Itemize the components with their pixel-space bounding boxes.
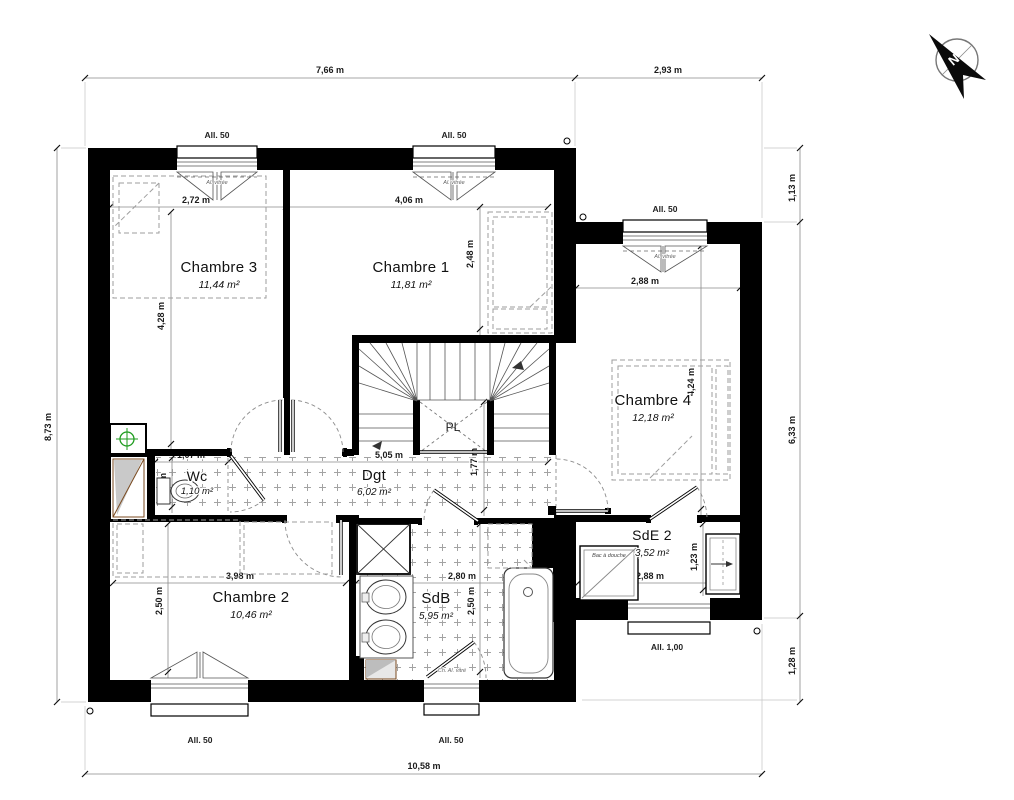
sill-label: All. 50 (204, 130, 229, 140)
sill-label-100: All. 1,00 (651, 642, 683, 652)
sde2-cabinet (706, 534, 740, 594)
room-name-chambre2: Chambre 2 (213, 589, 290, 606)
sdb-window-note: Ch. Al. vitré (438, 668, 466, 674)
double-washbasin (360, 576, 413, 658)
window-chambre4: Al. vitrée (623, 220, 707, 272)
dim-label-sde2-width: 2,88 m (636, 571, 664, 581)
window-note: Al. vitrée (205, 180, 227, 186)
room-area-dgt: 6,02 m² (357, 487, 392, 498)
dim-label-top-right: 2,93 m (654, 65, 682, 75)
room-area-chambre1: 11,81 m² (391, 279, 432, 291)
room-name-chambre3: Chambre 3 (181, 259, 258, 276)
staircase: PL (359, 343, 549, 452)
room-name-dgt: Dgt (362, 467, 387, 484)
window-sde2 (628, 596, 710, 634)
dim-label-ch2-height: 2,50 m (154, 587, 164, 615)
bed-chambre1 (488, 212, 552, 333)
sdb-closet (357, 524, 410, 574)
dim-label-ch1-height: 2,48 m (465, 240, 475, 268)
window-note: Al. vitrée (653, 254, 675, 260)
bathtub (504, 568, 553, 678)
dim-label-right-top: 1,13 m (787, 174, 797, 202)
dim-label-right-mid: 6,33 m (787, 416, 797, 444)
room-name-sde2: SdE 2 (632, 527, 672, 543)
dim-label-sdb-width: 2,80 m (448, 571, 476, 581)
room-area-chambre3: 11,44 m² (199, 279, 240, 291)
room-name-wc: Wc (187, 468, 208, 484)
room-area-sdb: 5,95 m² (419, 611, 454, 622)
dim-label-top-left: 7,66 m (316, 65, 344, 75)
window-chambre1: Al. vitrée (413, 146, 495, 200)
dim-label-sde2-height: 1,23 m (689, 543, 699, 571)
shower-tray: Bac à douche (580, 546, 638, 600)
stair-direction-arrows (372, 361, 524, 450)
floor-plan-page: 7,66 m 2,93 m 10,58 m 8,73 m 1,13 m 6,33… (0, 0, 1014, 800)
window-chambre3: Al. vitrée (177, 146, 257, 200)
dim-label-ch3-height: 4,28 m (156, 302, 166, 330)
dim-label-sdb-height: 2,50 m (466, 587, 476, 615)
room-area-chambre2: 10,46 m² (230, 609, 272, 621)
window-note: Al. vitrée (442, 180, 464, 186)
room-name-chambre4: Chambre 4 (615, 392, 692, 409)
dim-label-left: 8,73 m (43, 413, 53, 441)
sill-label: All. 50 (652, 204, 677, 214)
dim-label-right-bottom: 1,28 m (787, 647, 797, 675)
dim-label-ch4-width: 2,88 m (631, 276, 659, 286)
window-chambre2 (151, 652, 248, 716)
sdb-lower-fixture (366, 660, 396, 679)
room-name-chambre1: Chambre 1 (373, 259, 450, 276)
bed-chambre2 (113, 520, 332, 577)
room-name-sdb: SdB (421, 590, 450, 607)
sill-label: All. 50 (438, 735, 463, 745)
dim-label-ch3-width: 2,72 m (182, 195, 210, 205)
closet-label: PL (446, 420, 461, 434)
dim-label-hall-width: 5,05 m (375, 450, 403, 460)
floor-plan-svg: 7,66 m 2,93 m 10,58 m 8,73 m 1,13 m 6,33… (0, 0, 1014, 800)
room-area-sde2: 3,52 m² (635, 548, 670, 559)
room-area-chambre4: 12,18 m² (632, 412, 674, 424)
duct-shaft (110, 456, 148, 520)
sill-label: All. 50 (187, 735, 212, 745)
vmc-niche (110, 424, 146, 454)
shower-tray-label: Bac à douche (592, 553, 626, 559)
room-area-wc: 1,10 m² (181, 486, 214, 497)
dim-label-bottom: 10,58 m (407, 761, 440, 771)
sill-label: All. 50 (441, 130, 466, 140)
dim-label-ch1-width: 4,06 m (395, 195, 423, 205)
compass-rose: N (929, 34, 986, 99)
